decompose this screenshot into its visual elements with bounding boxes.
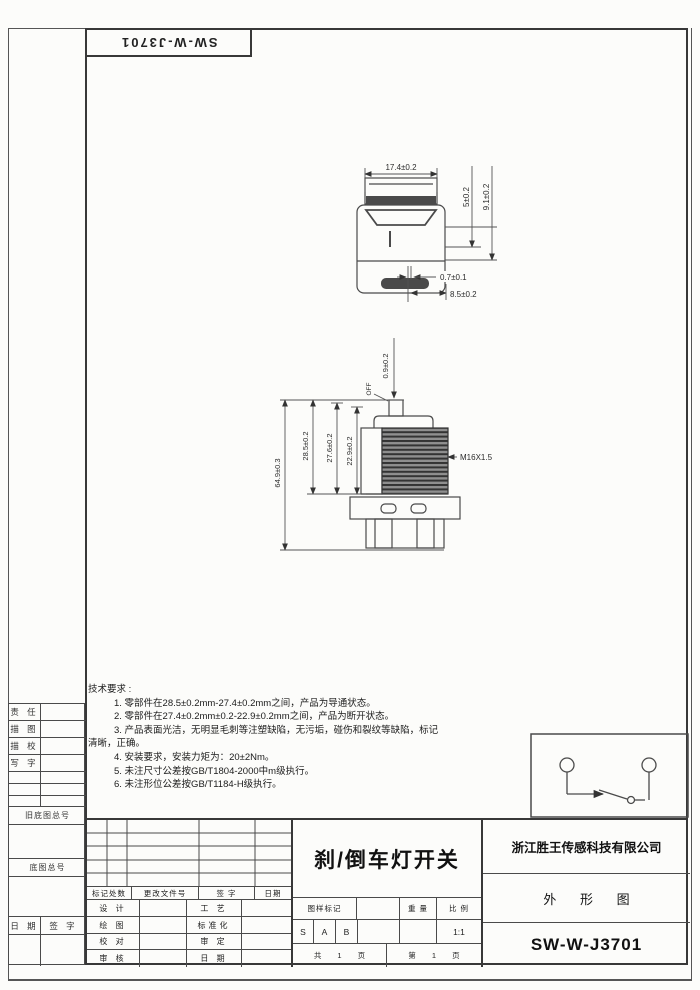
title-block: 标记处数 更改文件号 签 字 日期 设 计 工 艺 绘 图 标准化 校 对 审 … [85,818,688,965]
technical-requirements: 技术要求 : 1. 零部件在28.5±0.2mm-27.4±0.2mm之间，产品… [88,683,490,792]
sig-check-label: 校 对 [87,934,140,950]
company-name: 浙江胜王传感科技有限公司 [483,820,690,874]
part-number: SW-W-J3701 [483,923,690,967]
tech-line: 2. 零部件在27.4±0.2mm±0.2-22.9±0.2mm之间，产品为断开… [88,710,490,724]
tech-line: 4. 安装要求，安装力矩为：20±2Nm。 [88,751,490,765]
mark-label: 图样标记 [293,898,357,920]
margin-blank [9,784,41,796]
sig-blank [140,917,187,934]
sig-blank [140,934,187,950]
margin-blank-tall [9,825,86,859]
sig-blank [242,950,292,967]
sig-blank [242,934,292,950]
margin-blank [41,755,86,772]
sig-audit-label: 审 核 [87,950,140,967]
scale-label: 比 例 [437,898,482,920]
revision-grid-lines [87,820,291,887]
rev-header-file: 更改文件号 [132,887,199,900]
sig-date-label: 日 期 [187,950,242,967]
product-title: 刹/倒车灯开关 [293,820,482,898]
margin-label-xiezi: 写 字 [9,755,41,772]
sig-standard-label: 标准化 [187,917,242,934]
margin-blank-bottom [9,935,41,966]
weight-label: 重 量 [400,898,437,920]
sig-blank [140,900,187,917]
outer-right-border [691,28,692,980]
mark-s: S [293,920,314,944]
margin-blank [41,784,86,796]
inverted-part-number: SW-W-J3701 [120,35,218,50]
scale-value: 1:1 [437,920,482,944]
outer-bottom-border [8,979,692,981]
margin-old-base-number: 旧底图总号 [9,807,86,825]
sig-blank [242,900,292,917]
left-margin-table: 责 任 描 图 描 校 写 字 旧底图总号 底图总号 日 期 签 字 [8,703,85,965]
tech-line: 3. 产品表面光洁，无明显毛刺等注塑缺陷，无污垢，碰伤和裂纹等缺陷，标记 [88,724,490,738]
rev-header-mark: 标记处数 [87,887,132,900]
margin-date-label: 日 期 [9,917,41,935]
margin-label-miaotu: 描 图 [9,721,41,738]
sig-blank [242,917,292,934]
margin-sign-label: 签 字 [41,917,86,935]
rev-header-date: 日期 [255,887,292,900]
document-type: 外 形 图 [483,874,690,923]
sig-design-label: 设 计 [87,900,140,917]
margin-blank [9,772,41,784]
margin-blank-tall [9,877,86,917]
margin-base-number: 底图总号 [9,859,86,877]
sig-approve-label: 审 定 [187,934,242,950]
inverted-part-number-box: SW-W-J3701 [85,28,252,57]
sig-process-label: 工 艺 [187,900,242,917]
margin-blank [41,796,86,807]
margin-label-miaojiao: 描 校 [9,738,41,755]
margin-blank [41,704,86,721]
sig-blank [140,950,187,967]
outer-top-border [8,28,88,29]
sig-draw-label: 绘 图 [87,917,140,934]
mark-a: A [314,920,336,944]
tech-line: 1. 零部件在28.5±0.2mm-27.4±0.2mm之间，产品为导通状态。 [88,697,490,711]
tech-line: 6. 未注形位公差按GB/T1184-H级执行。 [88,778,490,792]
mark-blank [357,898,400,920]
tech-line: 5. 未注尺寸公差按GB/T1804-2000中m级执行。 [88,765,490,779]
rev-header-sign: 签 字 [199,887,255,900]
margin-blank [41,721,86,738]
margin-blank-bottom [41,935,86,966]
total-pages: 共 1 页 [293,944,387,967]
margin-label-zeren: 责 任 [9,704,41,721]
weight-value-blank [400,920,437,944]
tech-title: 技术要求 : [88,683,490,697]
tech-line-wrap: 清晰，正确。 [88,737,490,751]
revision-grid [87,820,292,887]
drawing-sheet: SW-W-J3701 责 任 描 图 描 校 写 字 旧底图总号 底图总号 日 … [0,0,700,990]
mark-b: B [336,920,358,944]
margin-blank [41,738,86,755]
margin-blank [41,772,86,784]
mark-blank [358,920,400,944]
page-number: 第 1 页 [387,944,482,967]
margin-blank [9,796,41,807]
